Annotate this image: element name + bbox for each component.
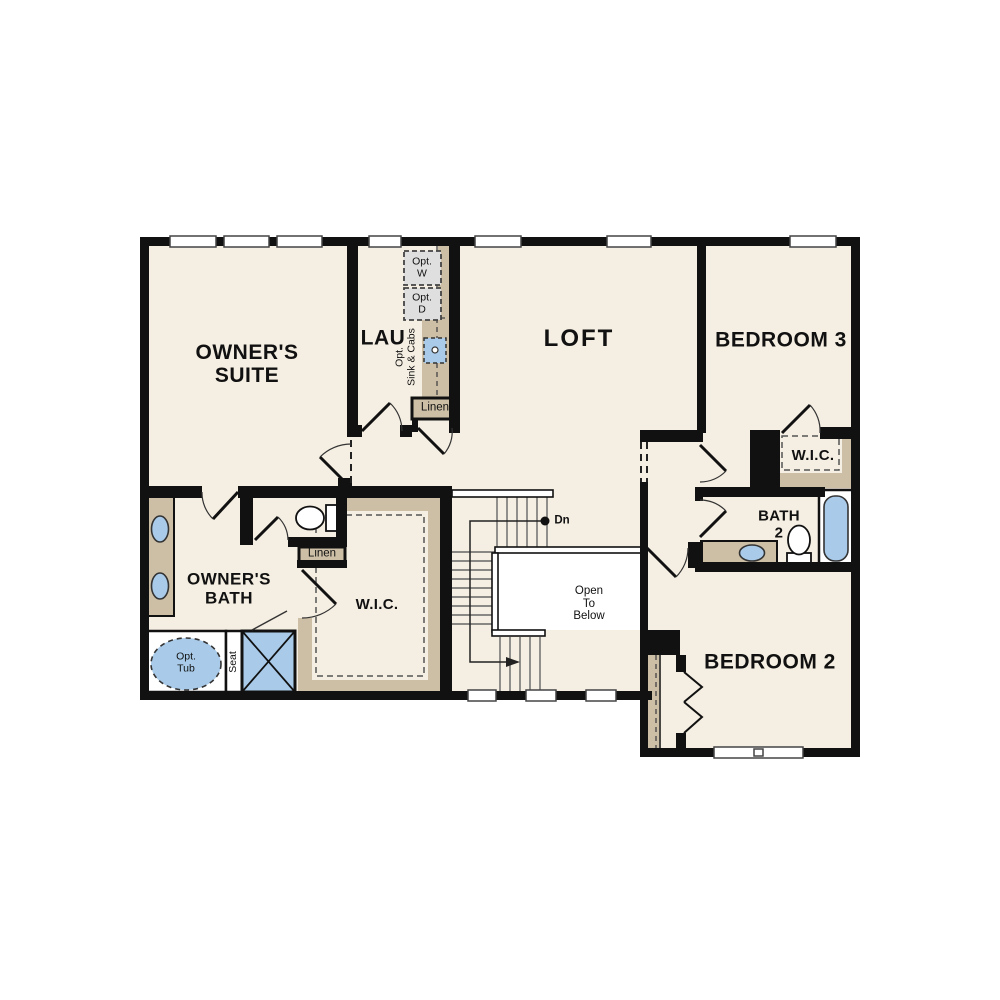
window (170, 236, 216, 247)
owners-toilet (296, 505, 338, 531)
wall-exterior-right (851, 237, 860, 757)
seat-label: Seat (228, 651, 240, 673)
owners-bath-sink-2 (152, 573, 169, 599)
room-label-bedroom2: BEDROOM 2 (704, 650, 836, 673)
floor-plan-drawing (0, 0, 1000, 1000)
room-label-owners-bath: OWNER'S BATH (187, 570, 271, 607)
opt-dryer-label: Opt. D (412, 292, 432, 315)
window-mullion (754, 749, 763, 756)
wall-exterior-bottom-main (140, 691, 652, 700)
room-label-wic-owners: W.I.C. (356, 597, 399, 614)
owners-shower (242, 631, 295, 692)
linen-upper-label: Linen (421, 402, 449, 415)
room-label-loft: LOFT (544, 326, 615, 352)
bath2-tub (819, 490, 853, 567)
room-label-owners-suite: OWNER'S SUITE (196, 341, 299, 387)
floor-plan: OWNER'S SUITE LAU LOFT BEDROOM 3 W.I.C. … (0, 0, 1000, 1000)
window (468, 690, 496, 701)
open-to-below-well (498, 553, 640, 630)
window (224, 236, 269, 247)
opt-washer-label: Opt. W (412, 256, 432, 279)
opt-tub-label: Opt. Tub (176, 651, 196, 674)
wall-bed2-closet-head (642, 630, 680, 655)
window (586, 690, 616, 701)
wall-chase (750, 430, 780, 490)
open-to-below-label: Open To Below (573, 585, 604, 623)
owners-bath-sink-1 (152, 516, 169, 542)
room-label-wic-bed3: W.I.C. (792, 448, 835, 465)
window (277, 236, 322, 247)
window (369, 236, 401, 247)
opt-sink-cabs-label: Opt. Sink & Cabs (394, 328, 417, 386)
window (526, 690, 556, 701)
room-label-bedroom3: BEDROOM 3 (715, 328, 847, 351)
bath2-sink (740, 545, 765, 561)
linen-lower-label: Linen (308, 548, 336, 561)
stair-down-marker (541, 517, 550, 526)
stairs-down-label: Dn (554, 515, 569, 528)
window (790, 236, 836, 247)
window (607, 236, 651, 247)
room-label-bath2: BATH 2 (758, 509, 800, 542)
wall-exterior-left (140, 237, 149, 700)
window (475, 236, 521, 247)
